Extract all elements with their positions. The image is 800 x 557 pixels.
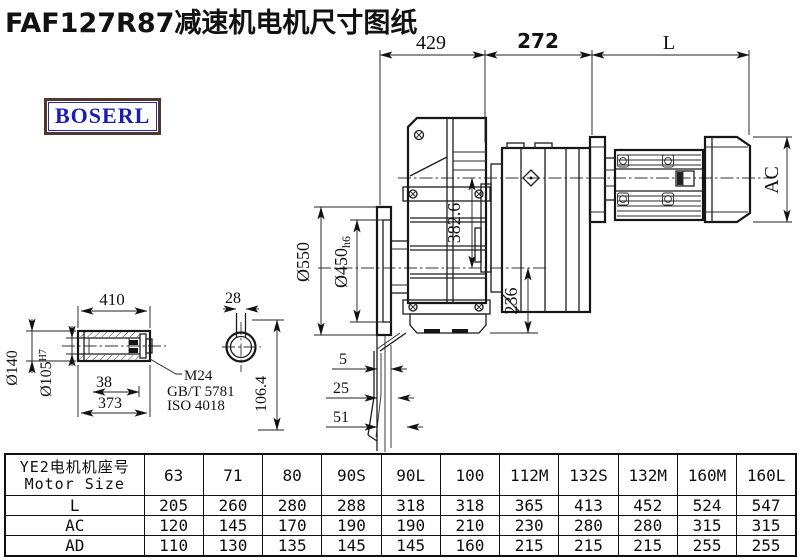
output-flange-edge-view xyxy=(368,207,406,452)
technical-drawing: 429 272 L AC 382.6 Ø550 Ø450h6 236 xyxy=(0,0,800,452)
motor-dimension-table: YE2电机机座号 Motor Size 63718090S90L100112M1… xyxy=(4,453,797,557)
drawing-sheet: FAF127R87减速机电机尺寸图纸 BOSERL xyxy=(0,0,800,557)
table-cell-ad-132s: 215 xyxy=(559,536,618,557)
dim-25: 25 xyxy=(333,380,349,397)
reducer-unit xyxy=(475,143,590,312)
table-cell-ac-71: 145 xyxy=(203,516,262,536)
dim-550: Ø550 xyxy=(293,242,313,282)
dimension-annotations: 429 272 L AC 382.6 Ø550 Ø450h6 236 xyxy=(4,29,792,430)
dim-5: 5 xyxy=(339,351,347,368)
table-cell-ac-100: 210 xyxy=(440,516,499,536)
table-cell-ad-112m: 215 xyxy=(500,536,559,557)
table-header-row: YE2电机机座号 Motor Size 63718090S90L100112M1… xyxy=(5,454,796,496)
table-cell-ac-160l: 315 xyxy=(737,516,796,536)
dim-38: 38 xyxy=(96,374,112,391)
dim-429: 429 xyxy=(416,32,446,54)
table-cell-ac-112m: 230 xyxy=(500,516,559,536)
table-row-l: L205260280288318318365413452524547 xyxy=(5,496,796,516)
column-header-80: 80 xyxy=(263,454,322,496)
dim-AC: AC xyxy=(761,166,783,194)
row-label-l: L xyxy=(5,496,144,516)
table-cell-l-90s: 288 xyxy=(322,496,381,516)
row-label-ad: AD xyxy=(5,536,144,557)
dim-382-6: 382.6 xyxy=(444,203,464,244)
table-cell-ad-63: 110 xyxy=(144,536,203,557)
dim-236: 236 xyxy=(501,288,521,315)
dim-105H7: Ø105H7 xyxy=(38,349,55,397)
fan-cover xyxy=(705,137,750,222)
table-cell-ac-132s: 280 xyxy=(559,516,618,536)
table-header-en: Motor Size xyxy=(6,476,144,493)
table-cell-l-112m: 365 xyxy=(500,496,559,516)
table-row-ac: AC120145170190190210230280280315315 xyxy=(5,516,796,536)
gearbox-front-view xyxy=(391,118,490,333)
table-cell-ad-90l: 145 xyxy=(381,536,440,557)
dim-373: 373 xyxy=(98,395,122,412)
table-cell-l-160l: 547 xyxy=(737,496,796,516)
dim-106-4: 106.4 xyxy=(253,376,270,412)
table-header-motor-size: YE2电机机座号 Motor Size xyxy=(5,454,144,496)
column-header-100: 100 xyxy=(440,454,499,496)
table-cell-l-80: 280 xyxy=(263,496,322,516)
column-header-90l: 90L xyxy=(381,454,440,496)
table-cell-ad-90s: 145 xyxy=(322,536,381,557)
leader-thread: M24 xyxy=(184,368,213,384)
motor-corner-screws xyxy=(618,155,674,205)
table-cell-ac-132m: 280 xyxy=(618,516,677,536)
column-header-63: 63 xyxy=(144,454,203,496)
leader-standard-iso: ISO 4018 xyxy=(167,398,225,414)
column-header-132m: 132M xyxy=(618,454,677,496)
motor-nameplate xyxy=(676,171,694,186)
table-cell-ac-80: 170 xyxy=(263,516,322,536)
column-header-132s: 132S xyxy=(559,454,618,496)
centerlines xyxy=(62,178,772,372)
table-header-cn: YE2电机机座号 xyxy=(6,458,144,476)
dim-51: 51 xyxy=(333,409,349,426)
column-header-112m: 112M xyxy=(500,454,559,496)
dim-L: L xyxy=(663,32,675,54)
table-cell-ad-80: 135 xyxy=(263,536,322,557)
table-cell-ac-63: 120 xyxy=(144,516,203,536)
column-header-90s: 90S xyxy=(322,454,381,496)
dim-28: 28 xyxy=(225,290,241,307)
table-cell-ac-90l: 190 xyxy=(381,516,440,536)
dim-272: 272 xyxy=(517,29,559,53)
table-cell-ac-160m: 315 xyxy=(677,516,736,536)
dim-140: Ø140 xyxy=(4,350,21,386)
table-cell-l-132m: 452 xyxy=(618,496,677,516)
table-cell-l-63: 205 xyxy=(144,496,203,516)
table-row-ad: AD110130135145145160215215215255255 xyxy=(5,536,796,557)
table-cell-l-90l: 318 xyxy=(381,496,440,516)
table-cell-ad-100: 160 xyxy=(440,536,499,557)
column-header-160m: 160M xyxy=(677,454,736,496)
table-cell-ac-90s: 190 xyxy=(322,516,381,536)
motor-side-view xyxy=(590,137,750,222)
table-cell-l-160m: 524 xyxy=(677,496,736,516)
table-cell-l-71: 260 xyxy=(203,496,262,516)
table-cell-ad-132m: 215 xyxy=(618,536,677,557)
column-header-71: 71 xyxy=(203,454,262,496)
row-label-ac: AC xyxy=(5,516,144,536)
dim-450h6: Ø450h6 xyxy=(331,236,353,288)
column-header-160l: 160L xyxy=(737,454,796,496)
table-cell-l-132s: 413 xyxy=(559,496,618,516)
table-cell-l-100: 318 xyxy=(440,496,499,516)
table-cell-ad-71: 130 xyxy=(203,536,262,557)
dim-410: 410 xyxy=(99,290,125,309)
table-cell-ad-160l: 255 xyxy=(737,536,796,557)
table-cell-ad-160m: 255 xyxy=(677,536,736,557)
